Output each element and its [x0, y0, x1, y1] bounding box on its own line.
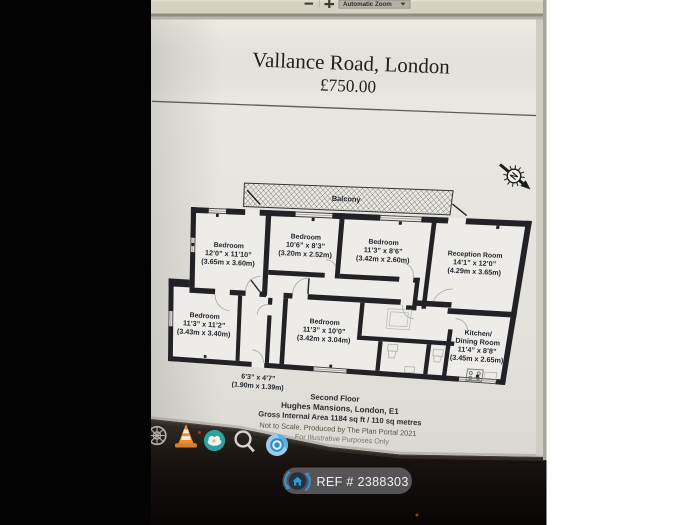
svg-text:£750.00: £750.00 — [320, 75, 377, 96]
svg-text:Automatic Zoom: Automatic Zoom — [343, 1, 392, 8]
svg-text:Balcony: Balcony — [332, 194, 362, 204]
svg-text:REF # 2388303: REF # 2388303 — [317, 475, 409, 489]
